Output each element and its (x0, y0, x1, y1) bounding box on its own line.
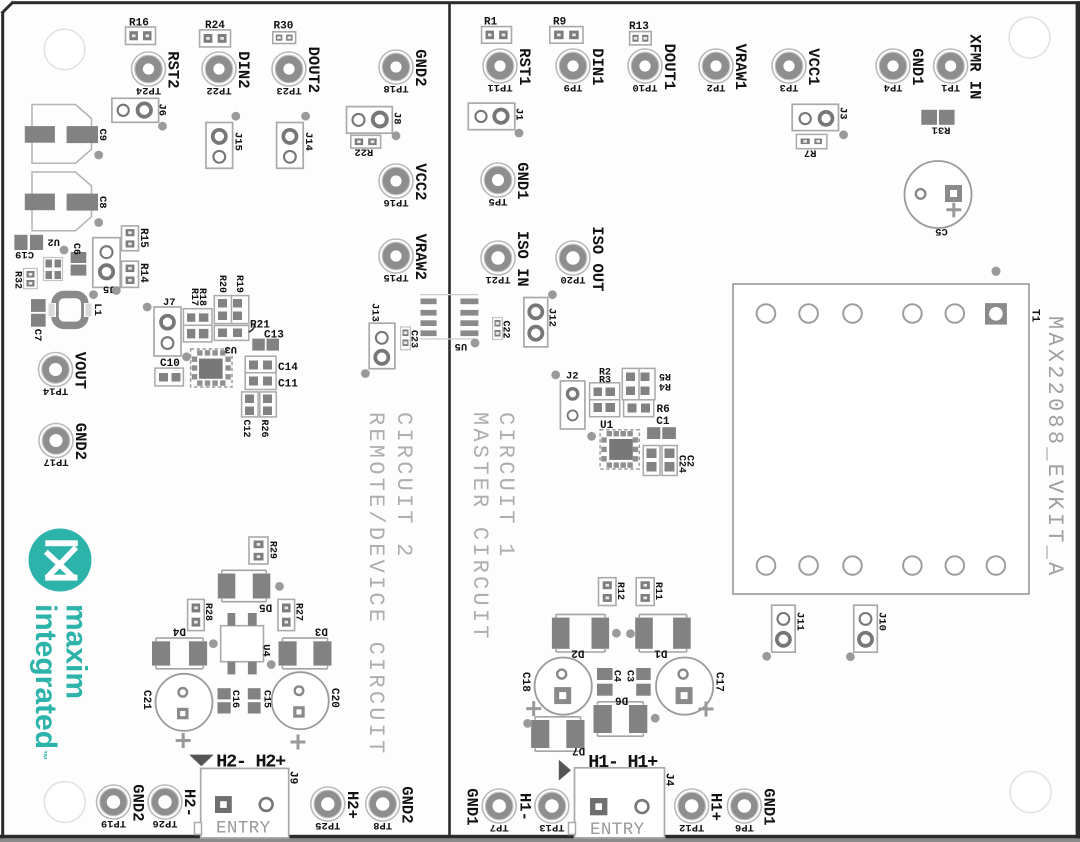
svg-text:R24: R24 (205, 20, 225, 32)
svg-text:C5: C5 (935, 225, 948, 237)
svg-text:VCC2: VCC2 (411, 163, 429, 200)
svg-text:VRAW1: VRAW1 (731, 44, 749, 91)
svg-text:TP4: TP4 (884, 81, 903, 93)
svg-text:U1: U1 (600, 420, 614, 432)
svg-text:VRAW2: VRAW2 (411, 234, 429, 281)
svg-text:DIN1: DIN1 (588, 48, 606, 85)
svg-text:H1-: H1- (515, 793, 533, 821)
svg-text:TP2: TP2 (707, 81, 726, 93)
svg-text:MAX22088_EVKIT_A: MAX22088_EVKIT_A (1042, 316, 1067, 578)
svg-text:C10: C10 (160, 358, 180, 370)
svg-text:R13: R13 (629, 21, 649, 33)
svg-text:TP13: TP13 (539, 821, 564, 833)
svg-text:L1: L1 (91, 303, 103, 316)
svg-text:D1: D1 (654, 647, 668, 659)
svg-text:RST2: RST2 (164, 51, 182, 88)
svg-text:R1: R1 (484, 17, 498, 29)
svg-text:C3: C3 (624, 670, 635, 682)
svg-text:TP10: TP10 (632, 81, 657, 93)
svg-text:T1: T1 (1029, 309, 1041, 323)
svg-text:GND2: GND2 (129, 784, 147, 821)
svg-text:XFMR IN: XFMR IN (966, 34, 984, 99)
svg-text:C20: C20 (328, 688, 340, 708)
svg-text:J6: J6 (156, 104, 168, 117)
svg-text:C15: C15 (261, 690, 272, 708)
svg-text:MASTER CIRCUIT: MASTER CIRCUIT (467, 412, 492, 642)
svg-text:TP23: TP23 (276, 84, 301, 96)
svg-text:R29: R29 (267, 541, 278, 559)
svg-text:C23: C23 (408, 330, 419, 348)
svg-text:R14: R14 (137, 263, 149, 283)
svg-text:TP17: TP17 (43, 455, 68, 467)
svg-text:J8: J8 (391, 112, 403, 125)
svg-text:J4: J4 (663, 773, 675, 787)
svg-text:J1: J1 (513, 108, 525, 121)
svg-text:TP12: TP12 (679, 821, 704, 833)
svg-text:REMOTE/DEVICE CIRCUIT: REMOTE/DEVICE CIRCUIT (363, 412, 388, 756)
svg-text:J7: J7 (163, 297, 176, 309)
svg-text:C12: C12 (240, 420, 251, 438)
svg-text:R6: R6 (657, 404, 670, 416)
svg-text:R30: R30 (274, 21, 294, 33)
svg-text:TP19: TP19 (101, 817, 126, 829)
svg-text:TP25: TP25 (315, 819, 340, 831)
svg-text:D7: D7 (572, 744, 585, 756)
svg-text:R15: R15 (137, 228, 149, 248)
svg-text:TP11: TP11 (487, 81, 512, 93)
svg-text:CIRCUIT 2: CIRCUIT 2 (391, 412, 416, 560)
svg-text:C4: C4 (611, 670, 622, 682)
svg-text:J14: J14 (302, 132, 314, 151)
svg-text:C2: C2 (684, 455, 695, 467)
svg-text:J13: J13 (369, 303, 381, 322)
svg-text:D3: D3 (314, 624, 328, 636)
svg-text:R19: R19 (233, 275, 244, 293)
svg-text:R11: R11 (652, 582, 663, 600)
svg-text:R32: R32 (12, 271, 23, 289)
svg-text:TP18: TP18 (383, 82, 408, 94)
svg-text:TP1: TP1 (941, 81, 960, 93)
svg-text:H1+: H1+ (707, 793, 725, 821)
svg-text:ISO OUT: ISO OUT (588, 226, 606, 291)
svg-text:GND1: GND1 (759, 788, 777, 825)
svg-text:DOUT1: DOUT1 (660, 44, 678, 91)
svg-text:D4: D4 (172, 624, 186, 636)
svg-text:C18: C18 (519, 672, 531, 692)
svg-text:C21: C21 (140, 690, 152, 710)
svg-text:J3: J3 (837, 107, 849, 120)
svg-text:GND1: GND1 (513, 162, 531, 199)
svg-text:DOUT2: DOUT2 (304, 47, 322, 94)
svg-text:R28: R28 (202, 603, 213, 621)
svg-text:J11: J11 (794, 612, 806, 631)
svg-text:TP22: TP22 (206, 84, 231, 96)
svg-text:J10: J10 (876, 612, 888, 631)
svg-text:C19: C19 (15, 248, 34, 260)
svg-text:U3: U3 (224, 343, 237, 355)
svg-text:D6: D6 (615, 694, 628, 706)
svg-text:ENTRY: ENTRY (590, 820, 645, 840)
svg-text:R5: R5 (659, 370, 671, 381)
svg-text:D2: D2 (571, 647, 584, 659)
svg-text:C7: C7 (31, 329, 43, 342)
svg-text:TP3: TP3 (780, 81, 799, 93)
svg-text:GND2: GND2 (411, 49, 429, 86)
svg-text:C6: C6 (70, 243, 81, 255)
svg-text:RST1: RST1 (515, 48, 533, 85)
svg-text:R20: R20 (216, 275, 227, 293)
svg-text:maxim: maxim (60, 604, 93, 699)
svg-text:integrated: integrated (29, 604, 62, 749)
svg-text:H2+: H2+ (343, 791, 361, 819)
svg-text:TP8: TP8 (373, 819, 392, 831)
svg-text:R16: R16 (129, 18, 149, 30)
svg-text:C16: C16 (229, 690, 240, 708)
svg-text:J2: J2 (566, 371, 579, 383)
svg-text:DIN2: DIN2 (234, 51, 252, 88)
svg-text:J15: J15 (232, 132, 244, 151)
svg-text:C22: C22 (500, 321, 511, 339)
svg-text:D5: D5 (259, 600, 273, 612)
svg-text:VCC1: VCC1 (804, 48, 822, 85)
svg-text:R9: R9 (553, 17, 566, 29)
svg-text:ENTRY: ENTRY (216, 819, 271, 839)
svg-text:TP20: TP20 (560, 273, 585, 285)
svg-text:C8: C8 (96, 196, 108, 209)
svg-text:C9: C9 (96, 129, 108, 142)
svg-text:U5: U5 (455, 340, 468, 352)
svg-text:CIRCUIT 1: CIRCUIT 1 (493, 412, 518, 560)
svg-text:GND2: GND2 (71, 423, 89, 460)
svg-text:J9: J9 (287, 771, 299, 784)
svg-text:ISO IN: ISO IN (513, 231, 531, 287)
svg-text:TP21: TP21 (485, 273, 510, 285)
svg-text:J12: J12 (546, 308, 558, 327)
svg-text:C13: C13 (264, 330, 284, 342)
svg-text:TP15: TP15 (383, 271, 408, 283)
svg-text:R26: R26 (258, 420, 269, 438)
svg-text:TP14: TP14 (43, 384, 68, 396)
svg-text:TP24: TP24 (136, 84, 161, 96)
svg-text:C1: C1 (656, 416, 670, 428)
svg-text:VOUT: VOUT (71, 352, 89, 389)
svg-text:R3: R3 (599, 376, 611, 387)
svg-text:U4: U4 (260, 644, 272, 657)
svg-text:R31: R31 (932, 124, 951, 136)
svg-text:C11: C11 (278, 379, 298, 391)
svg-text:C17: C17 (713, 672, 725, 692)
svg-text:TP7: TP7 (490, 821, 509, 833)
svg-text:H2-: H2- (180, 789, 198, 817)
svg-text:GND1: GND1 (463, 788, 481, 825)
svg-text:R18: R18 (196, 288, 207, 306)
svg-text:U2: U2 (47, 236, 60, 248)
svg-text:TP26: TP26 (152, 817, 177, 829)
svg-text:R22: R22 (354, 145, 373, 157)
svg-text:™: ™ (37, 750, 48, 760)
svg-text:TP16: TP16 (383, 196, 408, 208)
svg-text:R12: R12 (614, 582, 625, 600)
svg-text:TP6: TP6 (735, 821, 754, 833)
svg-text:TP9: TP9 (564, 81, 583, 93)
svg-text:TP5: TP5 (488, 195, 507, 207)
svg-text:R7: R7 (804, 146, 817, 158)
svg-text:GND1: GND1 (908, 48, 926, 85)
svg-text:C14: C14 (278, 362, 298, 374)
svg-text:R27: R27 (293, 603, 304, 621)
svg-text:GND2: GND2 (398, 786, 416, 823)
